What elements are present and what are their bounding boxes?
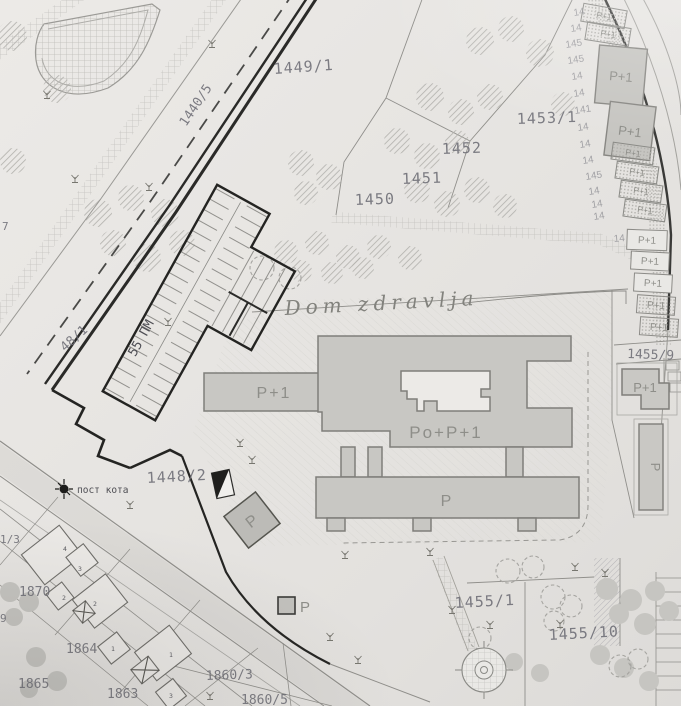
parking-legend: P	[278, 597, 310, 616]
storey-label-central: Po+P+1	[409, 423, 482, 442]
house-number: 3	[78, 565, 82, 573]
storey-label: P+1	[647, 300, 666, 312]
parcel-label-1455-10: 1455/10	[548, 622, 619, 644]
parcel-fragment: 14	[582, 154, 595, 167]
fountain	[455, 641, 513, 699]
parcel-label-9: 9	[0, 612, 7, 625]
building-right-p1-block: P+1	[617, 363, 677, 415]
building-foot	[413, 518, 431, 531]
parcel-label-1455-9: 1455/9	[627, 347, 674, 364]
parcel-fragment: 141	[574, 103, 593, 117]
parcel-label-1451: 1451	[402, 169, 443, 188]
building-stub	[341, 447, 355, 477]
parcel-label-1-3: 1/3	[0, 533, 20, 546]
storey-label: P+1	[609, 68, 634, 85]
parcel-fragment: 14	[571, 70, 584, 83]
benchmark-label: пост кота	[77, 485, 128, 496]
parking-legend-label: P	[300, 599, 310, 616]
building-foot	[518, 518, 536, 531]
parcel-fragment: 145	[585, 169, 604, 183]
house-number: 1	[169, 651, 173, 659]
parcel-fragment: 14	[573, 6, 586, 19]
storey-label: P+1	[638, 235, 657, 247]
house-number: 3	[169, 692, 173, 700]
storey-label: P+1	[644, 278, 663, 290]
house-number: 2	[93, 600, 97, 608]
building-stub	[368, 447, 382, 477]
parcel-label-1870: 1870	[19, 585, 50, 600]
parcel-fragment: 14	[577, 121, 590, 134]
parcel-label-1864: 1864	[66, 642, 97, 657]
parcel-label-1860-3: 1860/3	[206, 667, 253, 684]
parcel-fragment: 14	[570, 22, 583, 35]
storey-label: P+1	[641, 256, 660, 268]
parcel-label-1440-5: 1440/5	[177, 82, 216, 129]
site-plan-drawing: 55 ПМ P+1 P+1 P+1 P+1 P+1 P+1 P+1	[0, 0, 681, 706]
house-number: 4	[63, 545, 67, 553]
parcel-fragment: 145	[567, 53, 586, 67]
parcel-label-1452: 1452	[442, 139, 483, 158]
parcel-label-1860-5: 1860/5	[241, 693, 288, 706]
parcel-label-1453-1: 1453/1	[517, 108, 578, 128]
house-number: 2	[62, 594, 66, 602]
storey-label-lower: P	[441, 493, 454, 510]
building-stub	[506, 447, 523, 477]
storey-label: P	[648, 463, 663, 472]
parcel-fragment: 14	[573, 87, 586, 100]
parcel-label-1448-2: 1448/2	[146, 466, 207, 487]
parcel-label-1450: 1450	[355, 190, 396, 209]
storey-label-wing: P+1	[257, 385, 292, 402]
storey-label: P+1	[633, 380, 657, 395]
parcel-fragment: 14	[588, 185, 601, 198]
parcel-fragment: 14	[591, 198, 604, 211]
building-right-p-block: P	[634, 419, 668, 515]
parcel-label-1865: 1865	[18, 677, 49, 692]
parcel-fragment: 14	[593, 210, 606, 223]
parcel-label-1449-1: 1449/1	[273, 56, 334, 78]
parcel-label-1863: 1863	[107, 687, 138, 702]
site-plan-canvas: 55 ПМ P+1 P+1 P+1 P+1 P+1 P+1 P+1	[0, 0, 681, 706]
parcel-fragment: 14	[613, 233, 625, 245]
house-number: 1	[111, 645, 115, 653]
parcel-fragment: 14	[579, 138, 592, 151]
storey-label: P+1	[617, 123, 642, 141]
building-foot	[327, 518, 345, 531]
parcel-fragment: 145	[565, 37, 584, 51]
parcel-label-1455-1: 1455/1	[454, 591, 515, 612]
parcel-label-7: 7	[2, 220, 9, 233]
storey-label: P+1	[650, 322, 669, 334]
